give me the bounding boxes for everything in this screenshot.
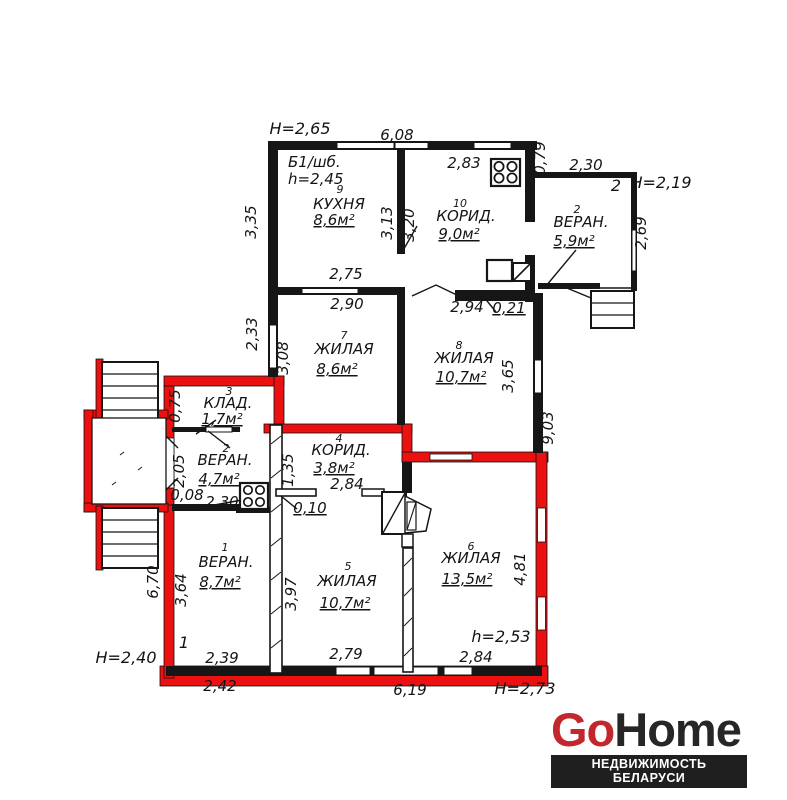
floor-plan-drawing: 9 КУХНЯ 8,6м² 10 КОРИД. 9,0м² 2 ВЕРАН. 5… — [0, 0, 787, 800]
veranda-tr-door-swing — [546, 250, 576, 286]
dim-veranda-tr-height: 2,69 — [632, 216, 650, 249]
room-veranda-tr-name: ВЕРАН. — [553, 213, 608, 231]
room-corridor4-name: КОРИД. — [311, 441, 370, 459]
dim-corridor-bottom: 2,94 — [450, 298, 483, 316]
dim-room5-left: 3,97 — [282, 577, 300, 611]
dim-room7-left-outer: 2,33 — [243, 317, 261, 350]
right-red-wall — [536, 452, 547, 678]
dim-wall-021: 0,21 — [492, 299, 525, 317]
dim-right-total: 9,03 — [539, 411, 557, 444]
ceiling-kitchen-label: h=2,45 — [288, 170, 343, 188]
height-top-left-label: H=2,65 — [269, 119, 330, 138]
logo-tagline: НЕДВИЖИМОСТЬ БЕЛАРУСИ — [551, 755, 747, 788]
room-veranda1-name: ВЕРАН. — [198, 553, 253, 571]
part-2-label: 2 — [611, 176, 621, 195]
height-annotations: H=2,65 Б1/шб. h=2,45 H=2,19 H=2,40 h=2,5… — [95, 119, 691, 698]
dim-room6-right: 4,81 — [511, 552, 529, 585]
dim-room8-right: 3,65 — [499, 359, 517, 392]
dim-veranda1-bottom-inner: 2,39 — [205, 649, 238, 667]
building-litera-label: Б1/шб. — [288, 153, 341, 171]
room-7-area: 8,6м² — [316, 360, 357, 378]
dim-veranda1-bottom-outer: 2,42 — [203, 677, 236, 695]
furnace-icon — [362, 489, 431, 547]
room-veranda-ml-name: ВЕРАН. — [197, 451, 252, 469]
room-6-area: 13,5м² — [442, 570, 493, 588]
dim-corridor4-left: 1,35 — [279, 453, 297, 486]
dim-veranda1-left-outer: 6,70 — [144, 565, 162, 598]
room-storage-area: 1,7м² — [201, 410, 242, 428]
room-veranda1-area: 8,7м² — [199, 573, 240, 591]
room6-left-stub — [402, 462, 412, 493]
room5-room6-partition — [403, 548, 413, 672]
storage-top-wall — [164, 376, 284, 386]
dim-bottom-width: 6,19 — [393, 681, 426, 699]
part-1-label: 1 — [179, 633, 189, 652]
room-5-name: ЖИЛАЯ — [316, 572, 377, 590]
height-bottom-right-label: H=2,73 — [494, 679, 555, 698]
dim-veranda-ml-bottom: 2,30 — [205, 493, 238, 511]
room-7-name: ЖИЛАЯ — [313, 340, 374, 358]
room-corridor10-area: 9,0м² — [438, 225, 479, 243]
dim-top-width: 6,08 — [380, 126, 413, 144]
dim-room5-bottom: 2,79 — [329, 645, 362, 663]
dim-corridor4-width: 2,84 — [330, 475, 363, 493]
bottom-window-3 — [444, 667, 472, 675]
height-top-right-label: H=2,19 — [630, 173, 691, 192]
dim-storage-left: 0,75 — [166, 389, 184, 422]
floor-plan-page: 9 КУХНЯ 8,6м² 10 КОРИД. 9,0м² 2 ВЕРАН. 5… — [0, 0, 787, 800]
room8-door-mark — [412, 285, 459, 296]
dim-kitchen-left: 3,35 — [242, 205, 260, 238]
stub-wall-010 — [276, 489, 316, 496]
dim-veranda-tr-width: 2,30 — [569, 156, 602, 174]
room6-right-window-2 — [538, 597, 546, 630]
dim-room7-left-inner: 3,08 — [274, 341, 292, 374]
dim-corr10-width: 2,83 — [447, 154, 480, 172]
stairs-bottom-left — [102, 508, 158, 568]
bottom-window-1 — [336, 667, 370, 675]
dim-veranda-ml-left: 2,05 — [170, 454, 188, 487]
room6-top-window — [430, 454, 472, 460]
top-window-3 — [474, 143, 511, 149]
dim-divider-corridor-side: 3,20 — [400, 208, 418, 241]
dim-room7-top: 2,90 — [330, 295, 363, 313]
room7-room8-divider — [397, 293, 405, 425]
porch — [92, 418, 166, 504]
room-veranda-tr-area: 5,9м² — [553, 232, 594, 250]
room6-right-window-1 — [538, 508, 546, 542]
logo-go-text: Go — [551, 703, 614, 756]
ceiling-room6-label: h=2,53 — [471, 627, 530, 646]
kitchen-stove-icon — [491, 159, 520, 186]
boiler-icon — [487, 260, 531, 281]
dim-stub-010: 0,10 — [293, 499, 326, 517]
dim-kitchen-bottom: 2,75 — [329, 265, 362, 283]
logo-home-text: Home — [614, 703, 741, 756]
stairs-top-left — [102, 362, 158, 422]
room-kitchen-area: 8,6м² — [313, 211, 354, 229]
room6-top-wall — [402, 452, 548, 462]
dim-divider-kitchen-side: 3,13 — [378, 206, 396, 239]
gohome-logo: GoHome НЕДВИЖИМОСТЬ БЕЛАРУСИ — [551, 706, 747, 788]
room-8-area: 10,7м² — [436, 368, 487, 386]
kitchen-bottom-window — [302, 289, 358, 294]
room-8-name: ЖИЛАЯ — [433, 349, 494, 367]
dim-jog-079: 0,79 — [531, 141, 549, 174]
room-veranda-ml-area: 4,7м² — [198, 470, 239, 488]
dim-veranda1-left-inner: 3,64 — [172, 573, 190, 606]
room-5-area: 10,7м² — [320, 594, 371, 612]
veranda-stove-icon — [240, 483, 268, 509]
stairs-top-right — [591, 291, 634, 328]
gohome-wordmark: GoHome — [551, 706, 747, 754]
dim-stub-008: 0,08 — [170, 486, 203, 504]
room-6-name: ЖИЛАЯ — [440, 549, 501, 567]
height-bottom-left-label: H=2,40 — [95, 648, 156, 667]
room-corridor10-name: КОРИД. — [436, 207, 495, 225]
dim-room6-bottom: 2,84 — [459, 648, 492, 666]
room8-right-window — [535, 360, 542, 393]
